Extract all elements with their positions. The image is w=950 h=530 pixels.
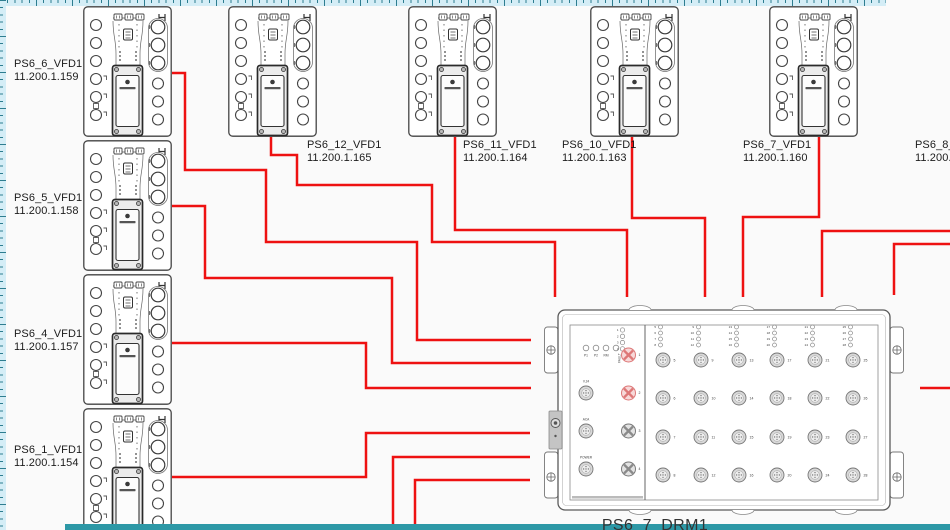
switch-text: 20: [767, 343, 771, 347]
switch-label: PS6_7_DRM1: [520, 517, 790, 530]
switch-text: 13: [729, 325, 733, 329]
switch-text: 28: [843, 343, 847, 347]
drm-switch-device[interactable]: P1P2RMFAULT12341234V.24ACAPOWER556677889…: [543, 303, 905, 515]
ruler-top: [0, 0, 886, 6]
vfd-device-ps6_7[interactable]: [770, 7, 857, 136]
switch-text: 6: [674, 396, 676, 400]
port-10[interactable]: [694, 391, 708, 405]
switch-text: 25: [843, 325, 847, 329]
vfd-device-ps6_10[interactable]: [591, 7, 678, 136]
switch-text: 12: [691, 343, 695, 347]
vfd-device-ps6_4[interactable]: [84, 275, 171, 404]
switch-text: 24: [826, 473, 830, 477]
switch-text: 27: [843, 337, 847, 341]
port-27[interactable]: [846, 430, 860, 444]
port-1[interactable]: [622, 348, 636, 362]
switch-text: 18: [788, 396, 792, 400]
switch-text: 11: [712, 435, 716, 439]
port-23[interactable]: [808, 430, 822, 444]
port-aca[interactable]: [579, 424, 593, 438]
switch-text: 10: [712, 396, 716, 400]
port-16[interactable]: [732, 468, 746, 482]
vfd-device-ps6_12[interactable]: [229, 7, 316, 136]
switch-text: 2: [639, 391, 641, 395]
port-7[interactable]: [656, 430, 670, 444]
port-6[interactable]: [656, 391, 670, 405]
port-24[interactable]: [808, 468, 822, 482]
vfd-device-ps6_1[interactable]: [84, 409, 171, 530]
port-14[interactable]: [732, 391, 746, 405]
switch-text: P2: [594, 354, 598, 358]
port-2[interactable]: [622, 386, 636, 400]
port-11[interactable]: [694, 430, 708, 444]
switch-text: 15: [729, 337, 733, 341]
switch-text: 20: [788, 473, 792, 477]
port-12[interactable]: [694, 468, 708, 482]
switch-text: 5: [674, 358, 676, 362]
switch-text: POWER: [580, 456, 593, 460]
port-18[interactable]: [770, 391, 784, 405]
switch-text: 12: [712, 473, 716, 477]
switch-text: V.24: [583, 380, 589, 384]
switch-text: 22: [826, 396, 830, 400]
port-28[interactable]: [846, 468, 860, 482]
port-5[interactable]: [656, 353, 670, 367]
port-25[interactable]: [846, 353, 860, 367]
switch-text: 24: [805, 343, 809, 347]
vfd-device-ps6_5[interactable]: [84, 141, 171, 270]
schematic-canvas: P1P2RMFAULT12341234V.24ACAPOWER556677889…: [0, 0, 950, 530]
switch-text: 19: [788, 435, 792, 439]
switch-text: FAULT: [618, 353, 622, 363]
switch-text: 23: [826, 435, 830, 439]
switch-text: 17: [788, 358, 792, 362]
switch-text: 26: [843, 331, 847, 335]
port-v24[interactable]: [579, 386, 593, 400]
switch-text: 8: [674, 473, 676, 477]
port-22[interactable]: [808, 391, 822, 405]
port-26[interactable]: [846, 391, 860, 405]
switch-text: 25: [864, 358, 868, 362]
switch-text: 7: [674, 435, 676, 439]
switch-text: 23: [805, 337, 809, 341]
switch-text: 17: [767, 325, 771, 329]
switch-text: RM: [604, 354, 609, 358]
switch-text: 1: [639, 353, 641, 357]
port-9[interactable]: [694, 353, 708, 367]
switch-text: 4: [639, 467, 641, 471]
switch-text: 14: [750, 396, 754, 400]
switch-text: 3: [639, 429, 641, 433]
port-20[interactable]: [770, 468, 784, 482]
switch-text: 22: [805, 331, 809, 335]
switch-text: ACA: [583, 418, 590, 422]
switch-text: P1: [584, 354, 588, 358]
page-bottom-bar: [65, 524, 950, 530]
port-13[interactable]: [732, 353, 746, 367]
port-power[interactable]: [579, 462, 593, 476]
port-8[interactable]: [656, 468, 670, 482]
port-21[interactable]: [808, 353, 822, 367]
switch-text: 16: [750, 473, 754, 477]
switch-text: 28: [864, 473, 868, 477]
port-19[interactable]: [770, 430, 784, 444]
switch-text: 15: [750, 435, 754, 439]
switch-text: 26: [864, 396, 868, 400]
switch-text: 10: [691, 331, 695, 335]
vfd-device-ps6_11[interactable]: [409, 7, 496, 136]
switch-text: 27: [864, 435, 868, 439]
switch-text: 18: [767, 331, 771, 335]
port-15[interactable]: [732, 430, 746, 444]
switch-text: 13: [750, 358, 754, 362]
switch-text: 11: [691, 337, 694, 341]
switch-text: 21: [805, 325, 809, 329]
port-3[interactable]: [622, 424, 636, 438]
switch-text: 21: [826, 358, 830, 362]
ground-clamp: [549, 411, 562, 449]
ruler-left: [0, 0, 6, 530]
switch-text: 19: [767, 337, 771, 341]
port-17[interactable]: [770, 353, 784, 367]
vfd-device-ps6_6[interactable]: [84, 7, 171, 136]
switch-text: 9: [712, 358, 714, 362]
port-4[interactable]: [622, 462, 636, 476]
switch-text: 14: [729, 331, 733, 335]
switch-text: 16: [729, 343, 733, 347]
